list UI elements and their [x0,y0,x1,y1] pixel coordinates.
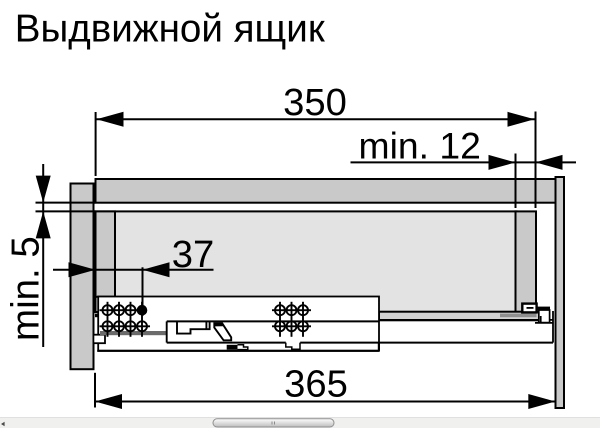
svg-text:350: 350 [283,81,347,124]
svg-text:min. 5: min. 5 [5,236,48,341]
svg-text:365: 365 [284,363,348,406]
svg-text:Выдвижной ящик: Выдвижной ящик [15,7,326,50]
svg-text:37: 37 [172,233,214,276]
svg-text:min. 12: min. 12 [359,125,481,167]
